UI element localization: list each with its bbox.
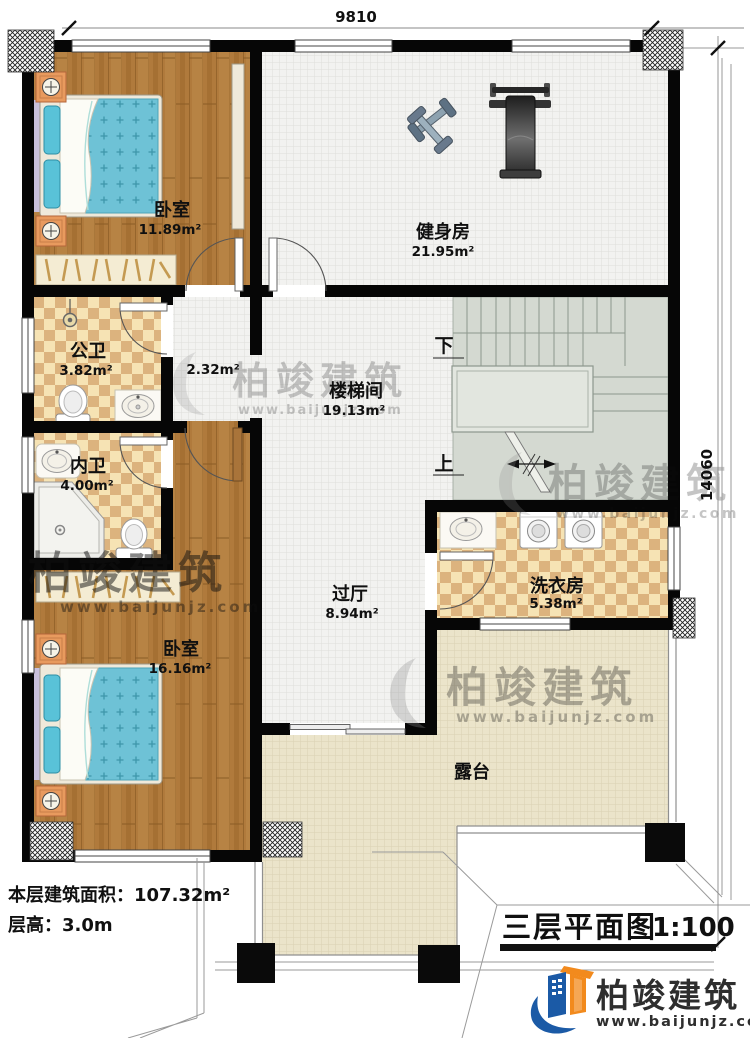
wall <box>240 285 273 297</box>
hatch-marker <box>263 822 302 857</box>
wall <box>161 357 173 421</box>
dim-right-label: 14060 <box>698 449 716 501</box>
room-label-terrace: 露台 <box>454 761 490 783</box>
wall <box>325 285 680 297</box>
wall <box>22 285 185 297</box>
room-label-laundry: 洗衣房 <box>530 575 584 597</box>
window <box>512 40 630 52</box>
drawing-title: 三层平面图 <box>502 910 657 944</box>
wall <box>425 500 437 553</box>
sliding-door-terrace <box>290 725 405 735</box>
hatch-marker <box>673 598 695 638</box>
room-label-hall: 过厅 <box>332 583 368 605</box>
bed2-pillow <box>44 675 60 721</box>
window <box>75 850 210 862</box>
room-label-bedroom1: 卧室 <box>154 199 190 221</box>
room-label-private-bath: 内卫 <box>70 455 106 477</box>
watermark-url: www.baijunjz.com <box>556 506 739 522</box>
floor-height-text: 层高：3.0m <box>8 914 113 936</box>
dim-top-label: 9810 <box>335 8 377 26</box>
room-area-bedroom1: 11.89m² <box>139 222 202 238</box>
room-label-stairwell: 楼梯间 <box>329 380 383 402</box>
brand-logo-icon <box>531 966 594 1034</box>
room-area-corridor: 2.32m² <box>186 362 239 378</box>
title-block: 三层平面图 1:100 <box>500 910 735 951</box>
room-area-stairwell: 19.13m² <box>323 403 386 419</box>
window <box>22 620 34 673</box>
window <box>295 40 392 52</box>
nightstand <box>36 216 66 246</box>
floor-plan-drawing: 柏竣建筑 www.baijunjz.com 柏竣建筑 www.baijunjz.… <box>0 0 750 1038</box>
washing-machine-icon <box>520 511 557 548</box>
watermark: 柏竣建筑 www.baijunjz.com <box>28 548 261 616</box>
bedroom1-cabinet <box>232 64 244 229</box>
stair-landing <box>452 366 593 432</box>
window <box>22 437 34 493</box>
wall <box>250 40 262 297</box>
room-area-hall: 8.94m² <box>325 606 378 622</box>
column <box>237 943 275 983</box>
watermark-url: www.baijunjz.com <box>456 708 657 726</box>
room-area-bedroom2: 16.16m² <box>149 661 212 677</box>
sink-icon <box>440 512 496 548</box>
column <box>418 945 460 983</box>
window <box>668 527 680 590</box>
stairs-down-label: 下 <box>434 335 453 357</box>
wardrobe <box>36 255 176 285</box>
hatch-marker <box>8 30 54 72</box>
floor-plan-page: 柏竣建筑 www.baijunjz.com 柏竣建筑 www.baijunjz.… <box>0 0 750 1038</box>
floor-area-text: 本层建筑面积：107.32m² <box>8 884 230 906</box>
nightstand <box>36 634 66 664</box>
brand-url: www.baijunjz.com <box>596 1014 750 1030</box>
window <box>22 318 34 393</box>
title-underline <box>500 944 716 951</box>
room-label-bedroom2: 卧室 <box>163 638 199 660</box>
room-area-private-bath: 4.00m² <box>60 478 113 494</box>
hatch-marker <box>643 30 683 70</box>
bed1-pillow <box>44 106 60 154</box>
wall <box>250 723 290 735</box>
window <box>72 40 210 52</box>
watermark-text: 柏竣建筑 <box>446 663 638 712</box>
brand-logo: 柏竣建筑 www.baijunjz.com <box>531 966 750 1034</box>
room-area-gym: 21.95m² <box>412 244 475 260</box>
room-label-gym: 健身房 <box>416 221 470 243</box>
bed2-pillow <box>44 727 60 773</box>
wall <box>425 618 480 630</box>
sink-icon <box>115 390 161 421</box>
hatch-marker <box>30 822 73 860</box>
wall <box>22 421 173 433</box>
drawing-scale: 1:100 <box>652 913 735 943</box>
wall <box>250 418 262 850</box>
stairs-up-label: 上 <box>434 453 453 475</box>
bed1-pillow <box>44 160 60 208</box>
watermark-text: 柏竣建筑 <box>28 548 228 599</box>
nightstand <box>36 72 66 102</box>
room-label-public-bath: 公卫 <box>70 341 106 362</box>
window <box>480 618 570 630</box>
wall <box>570 618 680 630</box>
brand-name: 柏竣建筑 <box>596 976 740 1015</box>
watermark-url: www.baijunjz.com <box>60 598 261 616</box>
room-area-public-bath: 3.82m² <box>59 363 112 379</box>
nightstand <box>36 786 66 816</box>
wall <box>250 297 262 355</box>
room-area-laundry: 5.38m² <box>529 596 582 612</box>
column <box>645 823 685 862</box>
